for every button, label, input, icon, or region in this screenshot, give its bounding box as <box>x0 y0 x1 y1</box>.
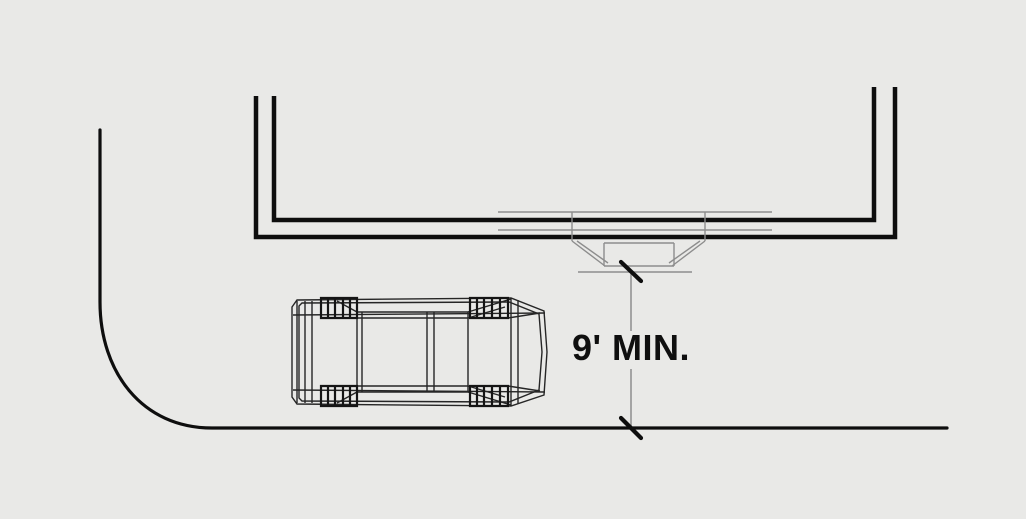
car-windshield-lines <box>468 299 511 405</box>
car-cabin-inner-lines <box>357 318 468 386</box>
wall-outer-line <box>256 87 895 237</box>
car-cabin-outline <box>357 312 468 392</box>
car-shoulder-lines <box>293 313 545 392</box>
street-curb-line <box>100 130 947 428</box>
wall-inner-line <box>274 87 874 220</box>
curb-path <box>100 130 947 428</box>
diagram-linework <box>0 0 1026 519</box>
car-wheel-rear-bottom <box>321 386 357 406</box>
building-wall-plan <box>256 87 895 237</box>
car-front-bumper-lines <box>511 298 518 406</box>
dimension-label: 9' MIN. <box>572 330 690 366</box>
door-splay-left <box>572 241 608 266</box>
car-hood-lines <box>508 313 540 391</box>
site-plan-diagram: 9' MIN. <box>0 0 1026 519</box>
car-rear-window-lines <box>337 301 357 403</box>
door-recess-panel <box>604 243 674 266</box>
car-plan-wireframe <box>292 298 547 406</box>
car-pillar-lines <box>362 312 434 392</box>
